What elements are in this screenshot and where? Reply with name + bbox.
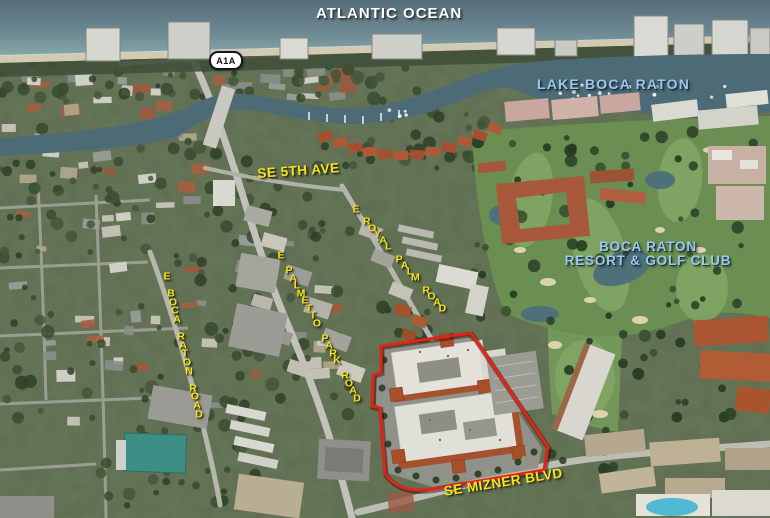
resort-label-line2: RESORT & GOLF CLUB [558,254,738,268]
route-shield-a1a: A1A [209,51,243,70]
resort-label-line1: BOCA RATON [558,240,738,254]
parking-lot [486,351,544,415]
lake-label: LAKE BOCA RATON [537,77,690,92]
ocean-label: ATLANTIC OCEAN [316,6,462,22]
swimming-pool [646,498,698,516]
resort-label: BOCA RATON RESORT & GOLF CLUB [558,240,738,268]
aerial-map-view: A1A ATLANTIC OCEAN LAKE BOCA RATON BOCA … [0,0,770,518]
